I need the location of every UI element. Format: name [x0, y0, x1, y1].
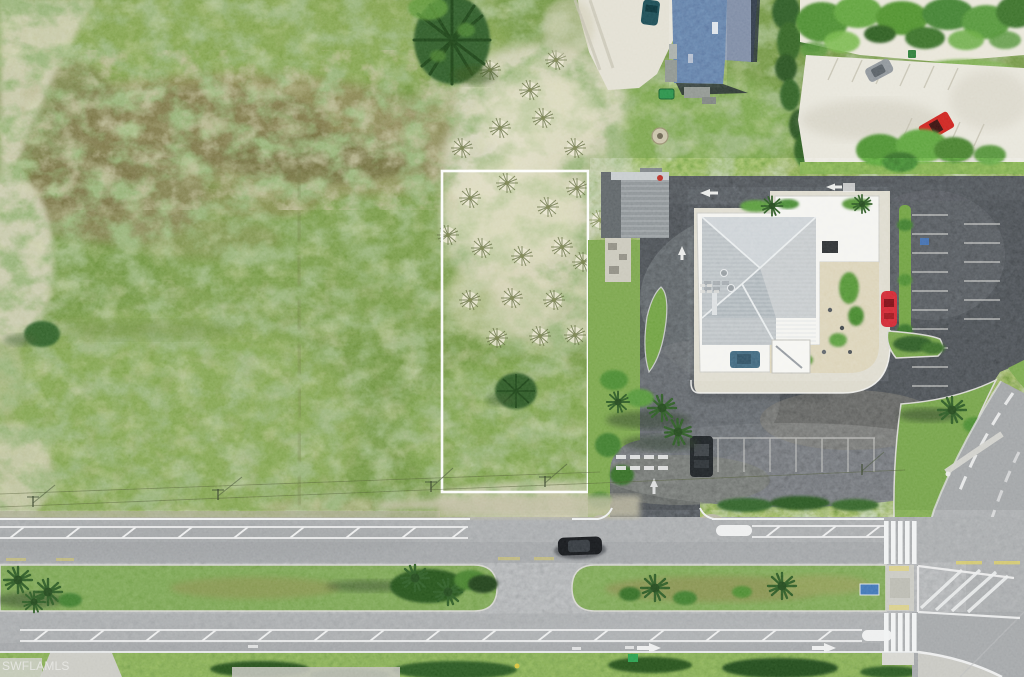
- svg-text:SWFLAMLS: SWFLAMLS: [2, 659, 70, 673]
